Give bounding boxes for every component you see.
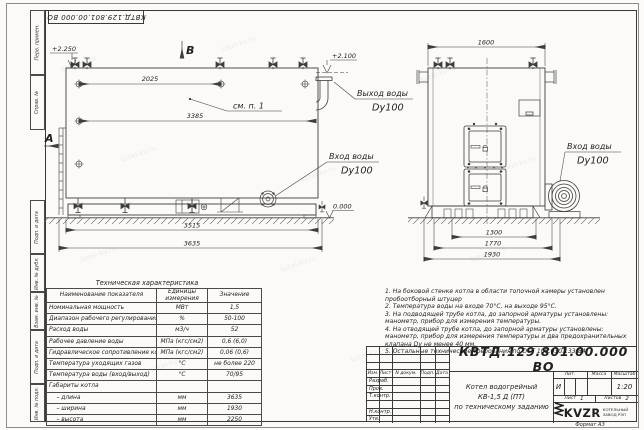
dim-3385: 3385	[187, 112, 204, 120]
units-line2: измерения	[165, 296, 199, 302]
col-podp: Подп.	[420, 369, 435, 377]
lit-value: И	[553, 378, 564, 395]
row-value: 0,06 (0,6)	[208, 347, 262, 358]
row-units: МПа (кгс/см2)	[157, 336, 208, 347]
lit-header: Лит.	[553, 371, 587, 378]
anchor-mark	[75, 160, 84, 169]
table-row: Температура уходящих газов°Сне более 220	[47, 358, 262, 369]
note-item: 1. На боковой стенке котла в области топ…	[385, 288, 638, 303]
ladder	[59, 128, 66, 215]
sheet-value: 1	[580, 396, 584, 402]
spec-table-block: Техническая характеристика Наименование …	[46, 279, 248, 426]
row-value: 50-100	[208, 314, 262, 325]
row-value: не более 220	[208, 358, 262, 369]
row-value: 1930	[208, 403, 262, 414]
row-units: °С	[157, 358, 208, 369]
table-row: Расход водым3/ч52	[47, 325, 262, 336]
row-name: Диапазон рабочего регулирования	[47, 314, 157, 325]
sheets-value: 2	[625, 396, 629, 402]
doc-number: КВТД.129.801.00.000 ВО	[449, 347, 638, 371]
spec-col-value: Значение	[208, 289, 262, 303]
table-row: Температура воды (вход/выход)°С70/95	[47, 370, 262, 381]
row-name: Гидравлическое сопротивление котла	[47, 347, 157, 358]
product-name-line2: КВ-1,5 Д (ПТ)	[478, 392, 525, 402]
coil-icon	[554, 402, 564, 418]
table-row: Номинальная мощностьМВт1,5	[47, 303, 262, 314]
row-units: мм	[157, 403, 208, 414]
spec-table-title: Техническая характеристика	[46, 279, 248, 287]
spec-col-name: Наименование показателя	[47, 289, 157, 303]
dim-2025: 2025	[142, 75, 159, 83]
row-name: Расход воды	[47, 325, 157, 336]
drawing-sheet: kotel-kv.ru kotel-kv.ru kotel-kv.ru kote…	[0, 0, 644, 430]
row-value: 0,6 (6,0)	[208, 336, 262, 347]
product-name-line3: по техническому заданию	[454, 402, 549, 412]
row-name: Температура уходящих газов	[47, 358, 157, 369]
valve-icon	[421, 197, 427, 209]
dim-1930: 1930	[484, 251, 501, 259]
note-item: 2. Температура воды на входе 70°С, на вы…	[385, 303, 638, 311]
row-units: мм	[157, 392, 208, 403]
row-name: Рабочее давление воды	[47, 336, 157, 347]
level-text-2100: +2.100	[332, 52, 356, 60]
valve-icon	[216, 58, 224, 69]
dim-3635: 3635	[184, 240, 201, 248]
inlet-dn-label-front: Dy100	[577, 156, 609, 167]
level-mark-zero	[326, 211, 354, 218]
valve-icon	[529, 58, 537, 69]
furnace-door-upper	[464, 123, 506, 167]
row-name: Температура воды (вход/выход)	[47, 370, 157, 381]
scale-value: 1:20	[611, 378, 638, 395]
row-units	[157, 381, 208, 392]
units-line1: Единицы	[168, 289, 196, 295]
valve-icon	[319, 201, 325, 212]
inlet-volute	[545, 181, 580, 218]
scale-header: Масштаб	[611, 371, 638, 378]
format-note: Формат А3	[545, 422, 635, 428]
col-data: Дата	[435, 369, 449, 377]
mass-header: Масса	[587, 371, 611, 378]
sheets-label: Листов	[604, 396, 621, 401]
row-razrab: Разраб.	[367, 377, 394, 385]
callout-text: см. п. 1	[233, 102, 264, 111]
note-item: 3. На подводящей трубе котла, до запорно…	[385, 311, 638, 326]
col-izm: Изм.	[367, 369, 379, 377]
valve-icon	[83, 58, 91, 69]
company-logo: KVZR КОТЕЛЬНЫЙ ЗАВОД РЭП	[554, 402, 638, 423]
valve-icon	[434, 58, 442, 69]
row-name: Габариты котла	[47, 381, 157, 392]
valve-icon	[269, 58, 277, 69]
spec-table: Наименование показателя Единицыизмерения…	[46, 288, 262, 426]
front-view	[417, 58, 580, 224]
row-value: 2250	[208, 414, 262, 425]
product-name: Котел водогрейный КВ-1,5 Д (ПТ) по техни…	[451, 372, 552, 422]
table-row: – ширинамм1930	[47, 403, 262, 414]
row-name: – высота	[47, 414, 157, 425]
row-value: 52	[208, 325, 262, 336]
logo-text: КОТЕЛЬНЫЙ ЗАВОД РЭП	[603, 408, 629, 418]
support-frame	[217, 198, 243, 212]
anchor-mark	[301, 80, 310, 89]
logo-text-line2: ЗАВОД РЭП	[603, 413, 629, 418]
row-value	[208, 381, 262, 392]
dim-1600: 1600	[478, 39, 495, 47]
base-frame-front	[425, 206, 540, 218]
table-row: Гидравлическое сопротивление котлаМПа (к…	[47, 347, 262, 358]
table-row: Диапазон рабочего регулирования%50-100	[47, 314, 262, 325]
sight-box	[519, 100, 540, 116]
valve-icon	[74, 198, 82, 213]
row-utv: Утв.	[367, 415, 394, 423]
outlet-pipe-elbow	[316, 73, 348, 111]
level-mark-2100	[323, 60, 357, 73]
sheets-cell: Листов 2	[595, 395, 638, 402]
row-name: – ширина	[47, 403, 157, 414]
row-value: 3635	[208, 392, 262, 403]
view-label-b: В	[186, 44, 194, 57]
row-units: м3/ч	[157, 325, 208, 336]
level-text-2250: +2.250	[52, 45, 76, 53]
col-ndoc: N докум.	[392, 369, 420, 377]
side-flange-stub-left	[417, 70, 428, 84]
inlet-label-side: Вход воды	[329, 152, 374, 161]
row-value: 1,5	[208, 303, 262, 314]
dim-1300: 1300	[486, 229, 503, 237]
row-units: %	[157, 314, 208, 325]
table-row: – высотамм2250	[47, 414, 262, 425]
outlet-label: Выход воды	[357, 89, 408, 98]
row-units: МВт	[157, 303, 208, 314]
sheet-cell: Лист 1	[553, 395, 595, 402]
table-row: Рабочее давление водыМПа (кгс/см2)0,6 (6…	[47, 336, 262, 347]
row-units: °С	[157, 370, 208, 381]
valve-icon	[446, 58, 454, 69]
table-row: – длинамм3635	[47, 392, 262, 403]
dim-1770: 1770	[485, 240, 502, 248]
spec-header-row: Наименование показателя Единицыизмерения…	[47, 289, 262, 303]
col-list: Лист	[379, 369, 392, 377]
furnace-door-lower	[464, 169, 506, 206]
side-view	[59, 58, 348, 218]
inlet-label-front: Вход воды	[567, 142, 612, 151]
inlet-flange-side	[260, 191, 276, 207]
logo-abbr: KVZR	[564, 406, 601, 420]
row-value: 70/95	[208, 370, 262, 381]
row-tkontr: Т.контр.	[367, 392, 394, 400]
sheet-label: Лист	[564, 396, 576, 401]
row-nkontr: Н.контр.	[367, 408, 394, 416]
spec-col-units: Единицыизмерения	[157, 289, 208, 303]
row-name: Номинальная мощность	[47, 303, 157, 314]
side-flange-stub-right	[545, 70, 556, 84]
boiler-body-side	[66, 68, 318, 198]
dim-3515: 3515	[184, 222, 201, 230]
table-row: Габариты котла	[47, 381, 262, 392]
inlet-dn-label-side: Dy100	[341, 166, 373, 177]
row-units: МПа (кгс/см2)	[157, 347, 208, 358]
view-label-a: А	[44, 132, 54, 145]
note-item: 4. На отводящей трубе котла, до запорной…	[385, 326, 638, 349]
product-name-line1: Котел водогрейный	[466, 382, 537, 392]
row-units: мм	[157, 414, 208, 425]
row-prov: Пров.	[367, 385, 394, 393]
row-name: – длина	[47, 392, 157, 403]
boiler-body-front	[428, 68, 545, 206]
valve-icon	[299, 58, 307, 69]
outlet-dn-label: Dy100	[372, 103, 404, 114]
level-text-zero: 0.000	[333, 203, 352, 211]
valve-icon	[121, 198, 129, 213]
title-block: КВТД.129.801.00.000 ВО Котел водогрейный…	[366, 346, 637, 422]
